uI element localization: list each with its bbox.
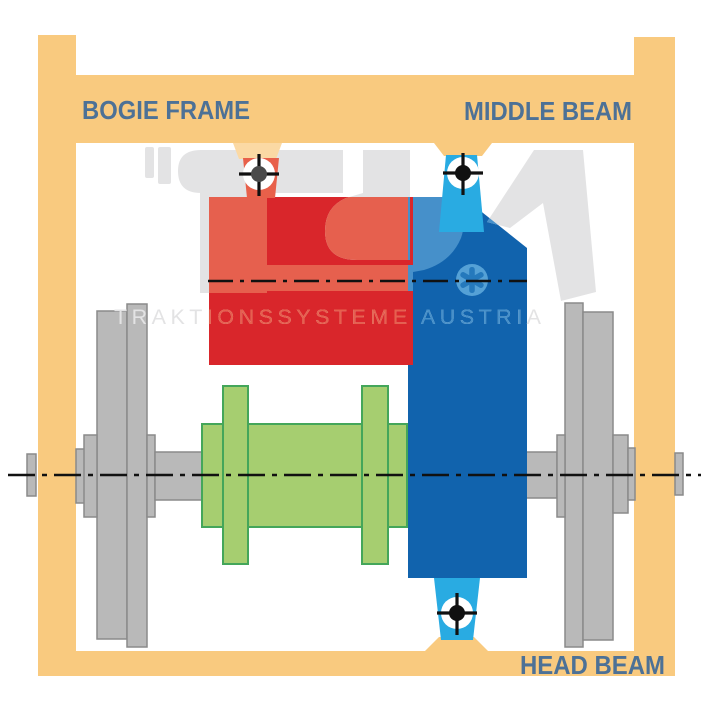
bogie-diagram: TRAKTIONSSYSTEME AUSTRIA — [0, 0, 709, 709]
frame-left-bar — [38, 35, 76, 676]
frame-right-bar — [634, 37, 675, 676]
label-head-beam: HEAD BEAM — [520, 650, 665, 680]
label-middle-beam: MIDDLE BEAM — [464, 96, 632, 126]
label-bogie-frame: BOGIE FRAME — [82, 95, 250, 125]
